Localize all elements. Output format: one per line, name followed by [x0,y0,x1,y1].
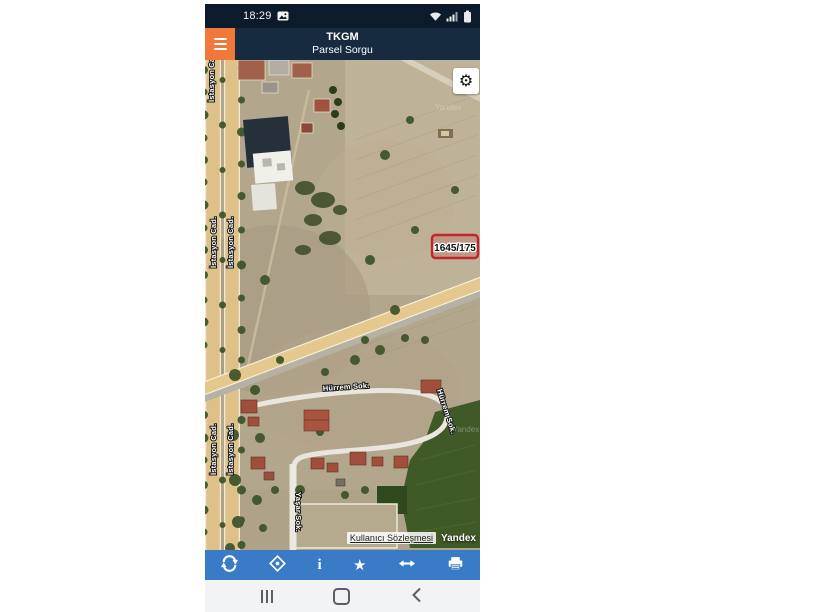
recents-icon [261,590,273,603]
map-attribution: Kullanıcı Sözleşmesi Yandex [347,532,476,544]
wifi-icon [429,10,442,22]
locate-button[interactable] [263,552,292,578]
info-icon: i [317,558,321,573]
back-button[interactable] [406,582,428,611]
info-button[interactable]: i [311,552,327,578]
favorite-button[interactable]: ★ [347,552,372,578]
street-label-yasar: Yaşar Sok. [294,492,303,532]
street-label-istasyon-partial: İstasyon Cad. [207,60,216,102]
map-settings-button[interactable]: ⚙ [453,68,479,94]
home-icon [333,588,350,605]
map-watermark-2: Yandex [453,425,480,434]
status-time: 18:29 [243,10,272,22]
menu-button[interactable] [205,28,235,60]
print-button[interactable] [441,552,470,578]
terms-link[interactable]: Kullanıcı Sözleşmesi [347,532,436,544]
street-label-istasyon-4: İstasyon Cad. [226,424,235,475]
battery-icon [463,10,472,23]
map-canvas[interactable]: 1645/175 İstasyon Cad. İstasyon Cad. İst… [205,60,480,550]
app-header: TKGM Parsel Sorgu [205,28,480,60]
phone-screen: 18:29 [205,4,480,612]
hamburger-icon [214,38,227,50]
recents-button[interactable] [257,586,277,607]
selected-parcel[interactable]: 1645/175 [432,235,478,258]
street-label-istasyon-3: İstasyon Cad. [209,424,218,475]
locate-icon [269,555,286,575]
app-subtitle: Parsel Sorgu [312,44,373,57]
provider-label: Yandex [441,533,476,544]
double-arrow-icon [398,555,416,575]
star-icon: ★ [353,558,366,573]
printer-icon [447,555,464,575]
refresh-icon [221,555,238,575]
refresh-button[interactable] [215,552,244,578]
street-label-istasyon-1: İstasyon Cad. [209,217,218,268]
back-icon [410,586,424,607]
parcel-number-label: 1645/175 [434,243,476,254]
home-button[interactable] [329,584,354,609]
signal-icon [446,10,459,22]
gallery-notification-icon [277,10,289,22]
map-watermark-1: Yandex [435,103,462,112]
gear-icon: ⚙ [459,73,473,89]
satellite-imagery: 1645/175 İstasyon Cad. İstasyon Cad. İst… [205,60,480,550]
app-title: TKGM [326,31,358,44]
measure-button[interactable] [392,552,422,578]
status-bar: 18:29 [205,4,480,28]
bottom-toolbar: i ★ [205,550,480,580]
screenshot-canvas: 18:29 [0,0,816,612]
street-label-istasyon-2: İstasyon Cad. [226,217,235,268]
android-nav-bar [205,580,480,612]
